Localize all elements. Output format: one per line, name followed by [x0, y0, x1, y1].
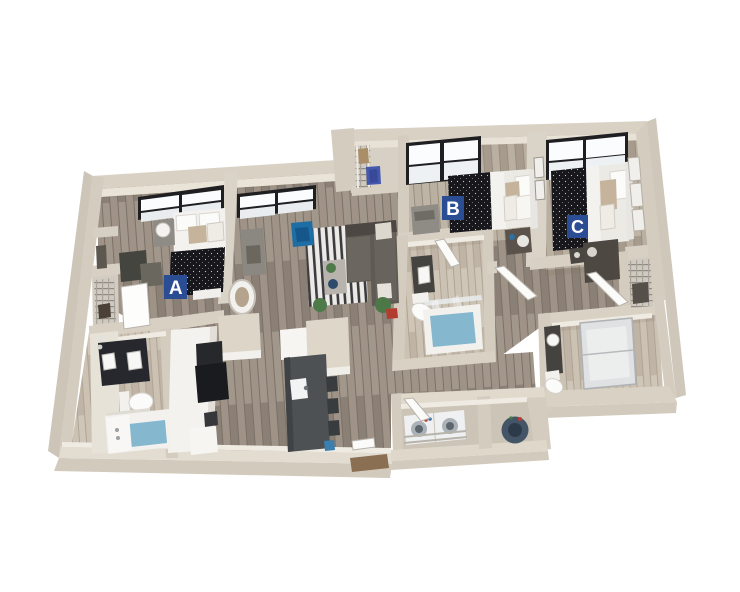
svg-text:C: C: [571, 217, 584, 237]
svg-text:B: B: [446, 199, 460, 220]
svg-text:A: A: [169, 278, 183, 299]
